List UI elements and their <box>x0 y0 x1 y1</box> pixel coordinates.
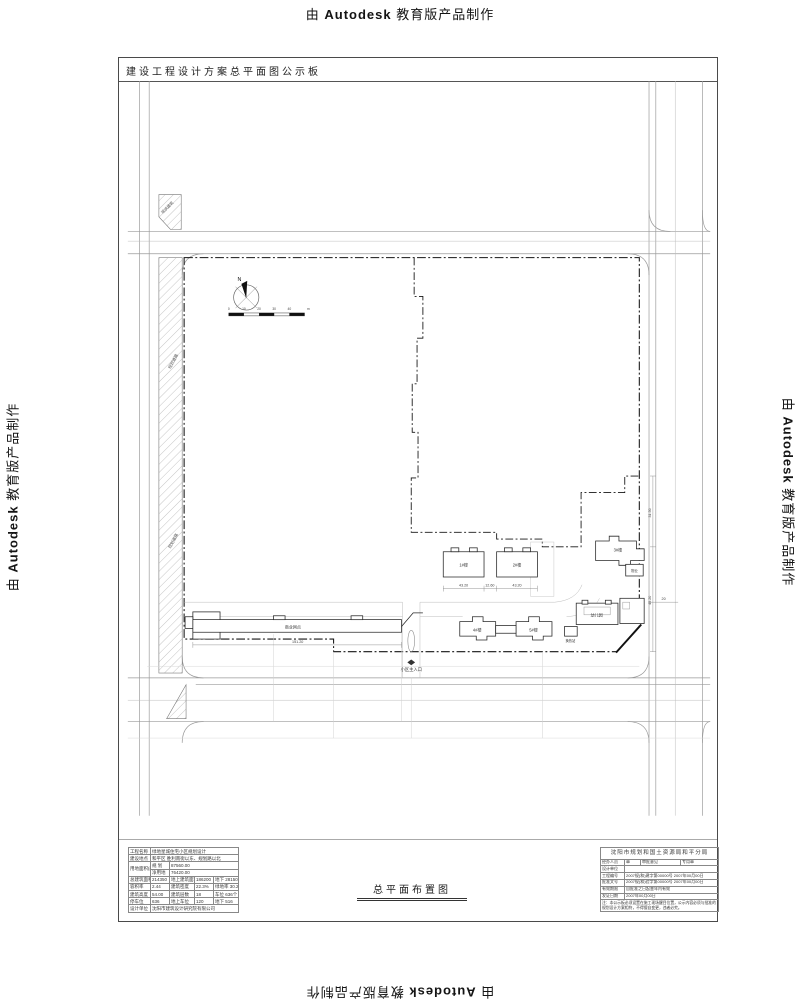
scale-10: 10 <box>242 307 246 311</box>
boundary-corner-cut <box>616 625 641 653</box>
board-title: 建设工程设计方案总平面图公示板 <box>126 63 321 78</box>
page: { "watermark": {"prefix": "由 ", "brand":… <box>0 0 800 1000</box>
building-3-label: 3#楼 <box>614 547 623 553</box>
scale-unit: m <box>307 307 310 311</box>
tbl-designer-value: 沈阳市建筑设计研究院有限公司 <box>151 905 239 912</box>
hatched-areas <box>159 195 186 719</box>
watermark-suffix: 教育版产品制作 <box>392 7 495 22</box>
drawing-frame: 建设工程设计方案总平面图公示板 <box>118 57 718 922</box>
indicator-table: 工程名称绿地星城住宅小区规划设计 建设地点和平区 胜利南街以东、规划路以北 用地… <box>128 847 239 913</box>
scale-40: 40 <box>288 307 292 311</box>
tbl-designer-label: 设计单位 <box>129 905 151 912</box>
scale-20: 20 <box>257 307 261 311</box>
phase-boundary <box>411 258 639 547</box>
road-network <box>128 81 710 816</box>
entrance-island <box>408 630 415 651</box>
road-centerlines <box>128 81 710 816</box>
watermark-top: 由 Autodesk 教育版产品制作 <box>306 4 494 23</box>
dim-right-lower: 45.20 <box>648 596 652 605</box>
site-boundary <box>184 258 639 652</box>
site-plan-canvas: 规划道路 规划道路 现状建筑 <box>119 81 719 839</box>
entrance-label: 小区主入口 <box>401 666 422 673</box>
shops-label: 商业网点 <box>285 623 301 629</box>
entrance-marker-icon <box>407 659 415 665</box>
hatch-road-strip <box>159 258 182 673</box>
heat-station-label: 换热站 <box>565 638 576 643</box>
bottom-divider <box>119 839 717 840</box>
buildings <box>185 536 644 640</box>
drawing-label: 总平面布置图 <box>357 881 467 901</box>
building-1-label: 1#楼 <box>459 561 468 567</box>
approval-header: 沈阳市规划和国土资源局和平分局 <box>601 848 719 860</box>
dim-b2-width: 43.20 <box>512 584 521 588</box>
scale-30: 30 <box>272 307 276 311</box>
tbl-project-label: 工程名称 <box>129 848 151 855</box>
dim-right-upper: 31.50 <box>648 508 652 517</box>
hatch-bottom-triangle <box>167 685 186 719</box>
tbl-landarea-label: 用地面积(m²) <box>129 862 151 876</box>
watermark-left: 由 Autodesk 教育版产品制作 <box>3 403 22 591</box>
watermark-right: 由 Autodesk 教育版产品制作 <box>780 398 799 586</box>
watermark-prefix: 由 <box>306 7 325 22</box>
watermark-brand: Autodesk <box>324 7 391 22</box>
dim-strip-length: 151.20 <box>292 640 303 644</box>
approval-note: 注：本公示板必须设置在施工现场醒目位置，公示内容必须与批准的规划设计方案相符，不… <box>601 900 719 912</box>
building-2-label: 2#楼 <box>513 561 522 567</box>
building-5-label: 5#楼 <box>529 626 538 632</box>
tbl-project-value: 绿地星城住宅小区规划设计 <box>151 848 239 855</box>
heat-station <box>565 626 578 636</box>
building-4-label: 4#楼 <box>473 626 482 632</box>
tbl-site-value: 和平区 胜利南街以东、规划路以北 <box>151 855 239 862</box>
kindergarten-label: 幼儿园 <box>591 612 603 618</box>
dim-gap: 12.60 <box>485 584 494 588</box>
north-compass: N <box>234 277 259 310</box>
dim-b1-width: 43.20 <box>459 584 468 588</box>
approval-block: 沈阳市规划和国土资源局和平分局 经办人员 章 审批意见 专用章 设计单位 工程编… <box>600 847 719 912</box>
property-label: 物业 <box>631 568 638 573</box>
scale-0: 0 <box>228 307 230 311</box>
north-label: N <box>238 277 242 283</box>
main-entrance: 小区主入口 <box>401 659 422 673</box>
dim-road-width: 20 <box>662 597 666 601</box>
tbl-site-label: 建设地点 <box>129 855 151 862</box>
